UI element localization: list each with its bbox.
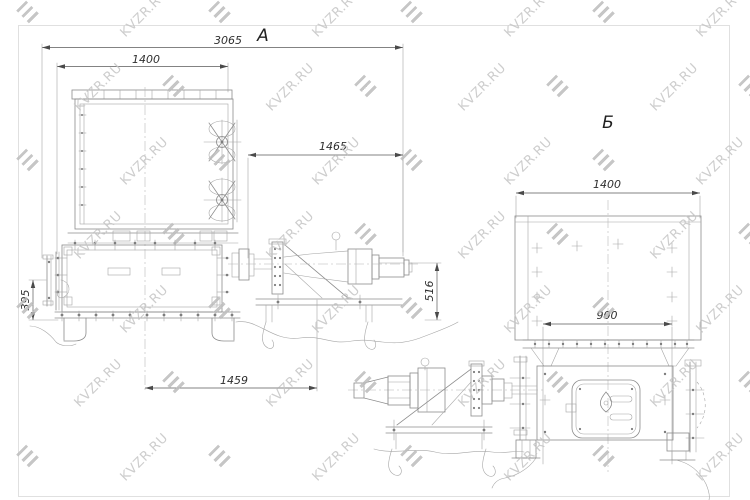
dim-center-to-motor-text: 1459 <box>220 374 248 387</box>
handwheel-valve-upper <box>204 120 241 164</box>
motor-pedestal-a <box>236 295 458 391</box>
base-bolt-row <box>61 311 234 321</box>
dim-overall-width-a-text: 3065 <box>214 34 242 47</box>
left-bracket-a <box>43 252 69 310</box>
stud-columns <box>55 257 229 294</box>
technical-drawing-canvas: А 3065 1400 <box>0 0 750 500</box>
dim-bracket-height-text: 395 <box>19 290 32 311</box>
view-a-label: А <box>256 26 269 46</box>
dim-motor-span-text: 1465 <box>319 140 347 153</box>
view-b-label: Б <box>602 113 614 133</box>
door-handle-icon <box>600 392 611 412</box>
mid-flange-a <box>68 231 238 243</box>
drawing-sheet: А 3065 1400 <box>0 0 750 500</box>
dim-box-width-a-text: 1400 <box>132 53 160 66</box>
flange-bolt-row-b <box>534 340 688 348</box>
sheet-frame <box>19 26 730 497</box>
left-bracket-b <box>510 356 540 458</box>
view-b: Б 1400 <box>348 113 709 500</box>
lower-housing-a <box>55 240 229 312</box>
dim-box-width-b-text: 1400 <box>593 178 621 191</box>
view-a: А 3065 1400 <box>19 26 458 392</box>
dim-bolt-span: 900 <box>543 309 672 464</box>
motor-assembly-b <box>348 358 545 476</box>
motor-assembly-a <box>228 232 418 298</box>
dim-motor-height: 516 <box>411 263 441 320</box>
handwheel-valve-lower <box>204 178 241 222</box>
lower-housing-b <box>537 366 673 440</box>
dim-bracket-height: 395 <box>19 280 58 320</box>
dim-bolt-span-text: 900 <box>597 309 618 322</box>
dim-motor-height-text: 516 <box>423 281 436 302</box>
access-door <box>566 380 640 438</box>
dim-box-width-b: 1400 <box>516 178 700 218</box>
dim-center-to-motor: 1459 <box>145 374 317 390</box>
top-rail <box>72 90 232 99</box>
base-a <box>30 311 240 346</box>
dim-motor-span: 1465 <box>248 140 403 258</box>
mid-flange-b <box>523 340 694 366</box>
upper-chamber-a <box>75 87 237 392</box>
